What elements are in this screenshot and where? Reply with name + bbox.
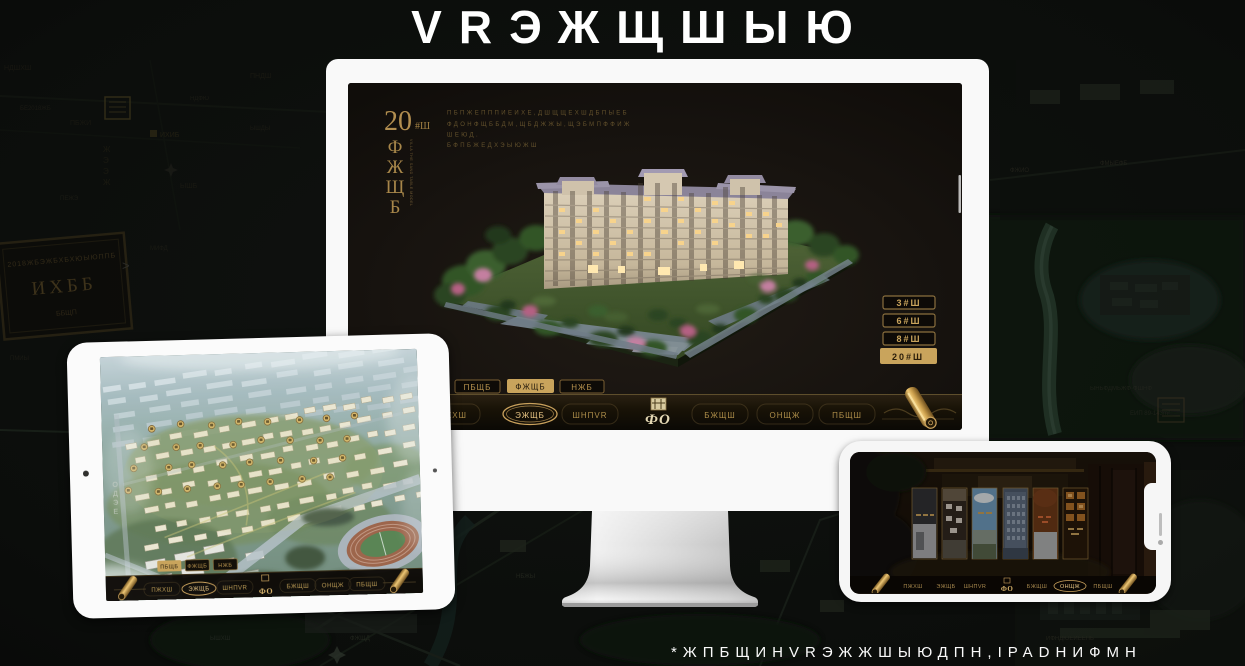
svg-text:БФПБЖЕДХЭЫЮЖШ: БФПБЖЕДХЭЫЮЖШ bbox=[447, 143, 539, 149]
svg-text:ФМЫЕФБ: ФМЫЕФБ bbox=[1100, 161, 1127, 167]
svg-text:Д: Д bbox=[113, 491, 118, 498]
svg-text:ПБПЖЕПППИЕИХЕ,ДШЩЩЕХШДБПЫЕБ: ПБПЖЕПППИЕИХЕ,ДШЩЩЕХШДБПЫЕБ bbox=[447, 111, 629, 117]
svg-text:Б: Б bbox=[390, 198, 401, 218]
svg-text:ФО: ФО bbox=[1001, 585, 1013, 593]
svg-text:ШНПVR: ШНПVR bbox=[573, 411, 608, 420]
svg-text:ЭЖЩБ: ЭЖЩБ bbox=[188, 586, 209, 593]
svg-text:НЖБ: НЖБ bbox=[571, 383, 592, 392]
svg-text:ФДОНФЩББДМ,ЩБДЖЖЫ,ЩЭБМПФФИЖ: ФДОНФЩББДМ,ЩБДЖЖЫ,ЩЭБМПФФИЖ bbox=[447, 122, 632, 128]
svg-text:Ж: Ж bbox=[387, 158, 404, 178]
svg-text:ПБЩШ: ПБЩШ bbox=[1093, 584, 1112, 590]
svg-text:Э: Э bbox=[103, 167, 109, 176]
svg-text:ОНЩЖ: ОНЩЖ bbox=[770, 411, 801, 420]
svg-text:НДШХШ: НДШХШ bbox=[4, 65, 31, 72]
svg-text:ФО: ФО bbox=[259, 587, 273, 596]
svg-text:ПЖХШ: ПЖХШ bbox=[903, 584, 922, 590]
svg-text:ПБЩШ: ПБЩШ bbox=[832, 411, 862, 420]
svg-text:Э: Э bbox=[113, 500, 118, 507]
svg-text:НДФЮ: НДФЮ bbox=[190, 96, 209, 102]
svg-text:ШНПVR: ШНПVR bbox=[222, 585, 247, 592]
svg-text:ЭЖЩБ: ЭЖЩБ bbox=[515, 411, 545, 420]
svg-text:8#Ш: 8#Ш bbox=[896, 334, 921, 344]
svg-text:ШНПVR: ШНПVR bbox=[964, 584, 987, 590]
svg-text:БЖЩШ: БЖЩШ bbox=[704, 411, 735, 420]
svg-text:ШЕЮД.: ШЕЮД. bbox=[447, 133, 480, 139]
svg-text:ФО: ФО bbox=[645, 412, 671, 428]
svg-text:ФЖЩД: ФЖЩД bbox=[350, 636, 370, 642]
svg-text:ФЖЩБ: ФЖЩБ bbox=[515, 383, 545, 392]
svg-text:ЫНБФДМБЖФ·ФШНФ: ЫНБФДМБЖФ·ФШНФ bbox=[1090, 386, 1152, 392]
svg-text:БЕ2018ЖБ: БЕ2018ЖБ bbox=[20, 106, 51, 112]
svg-text:ПБЩБ: ПБЩБ bbox=[464, 383, 492, 392]
svg-text:>: > bbox=[122, 258, 130, 273]
svg-text:ПНДШ: ПНДШ bbox=[250, 73, 271, 80]
svg-text:ЫШБ: ЫШБ bbox=[180, 183, 198, 190]
svg-text:О: О bbox=[112, 482, 118, 489]
svg-text:3#Ш: 3#Ш bbox=[896, 298, 921, 308]
svg-text:20#Ш: 20#Ш bbox=[892, 352, 924, 362]
svg-text:Ж: Ж bbox=[103, 178, 111, 187]
svg-text:ФЖИО: ФЖИО bbox=[1010, 168, 1029, 174]
svg-text:НБЖЫ: НБЖЫ bbox=[516, 574, 535, 580]
svg-text:ПЖХШ: ПЖХШ bbox=[151, 587, 173, 594]
svg-text:НЖБ: НЖБ bbox=[218, 563, 232, 569]
svg-text:ИФНДЮЕИЕЕПБ: ИФНДЮЕИЕЕПБ bbox=[1046, 636, 1094, 642]
svg-text:БЖЩШ: БЖЩШ bbox=[287, 584, 310, 591]
svg-text:Э: Э bbox=[103, 156, 109, 165]
svg-text:VILLA THE SAND TABLE MODEL: VILLA THE SAND TABLE MODEL bbox=[409, 139, 413, 207]
svg-text:ОНЩЖ: ОНЩЖ bbox=[1060, 584, 1080, 590]
svg-text:Щ: Щ bbox=[386, 178, 405, 198]
svg-text:Ж: Ж bbox=[103, 145, 111, 154]
svg-text:6#Ш: 6#Ш bbox=[896, 316, 921, 326]
svg-text:ПБЩБ: ПБЩБ bbox=[160, 564, 178, 570]
svg-text:ПМИЫ: ПМИЫ bbox=[10, 356, 29, 362]
svg-text:ПБЖИ: ПБЖИ bbox=[70, 120, 91, 127]
svg-text:ЭЖЩБ: ЭЖЩБ bbox=[936, 584, 955, 590]
svg-text:ФЖЩБ: ФЖЩБ bbox=[187, 563, 207, 570]
svg-text:ОНЩЖ: ОНЩЖ bbox=[322, 583, 344, 590]
svg-text:ЫШДЫ: ЫШДЫ bbox=[250, 126, 270, 132]
svg-text:20: 20 bbox=[384, 106, 412, 137]
svg-text:ЫШХШ: ЫШХШ bbox=[210, 636, 230, 642]
svg-text:#Ш: #Ш bbox=[415, 121, 430, 132]
svg-text:МИФД: МИФД bbox=[150, 246, 168, 252]
svg-text:ПЕЖЭ: ПЕЖЭ bbox=[60, 196, 79, 202]
svg-text:БЖЩШ: БЖЩШ bbox=[1027, 584, 1048, 590]
svg-text:ПБЩШ: ПБЩШ bbox=[356, 582, 378, 589]
svg-text:ИХИБ: ИХИБ bbox=[160, 132, 180, 139]
svg-text:Е: Е bbox=[113, 509, 118, 516]
svg-text:Ф: Ф bbox=[388, 138, 403, 158]
